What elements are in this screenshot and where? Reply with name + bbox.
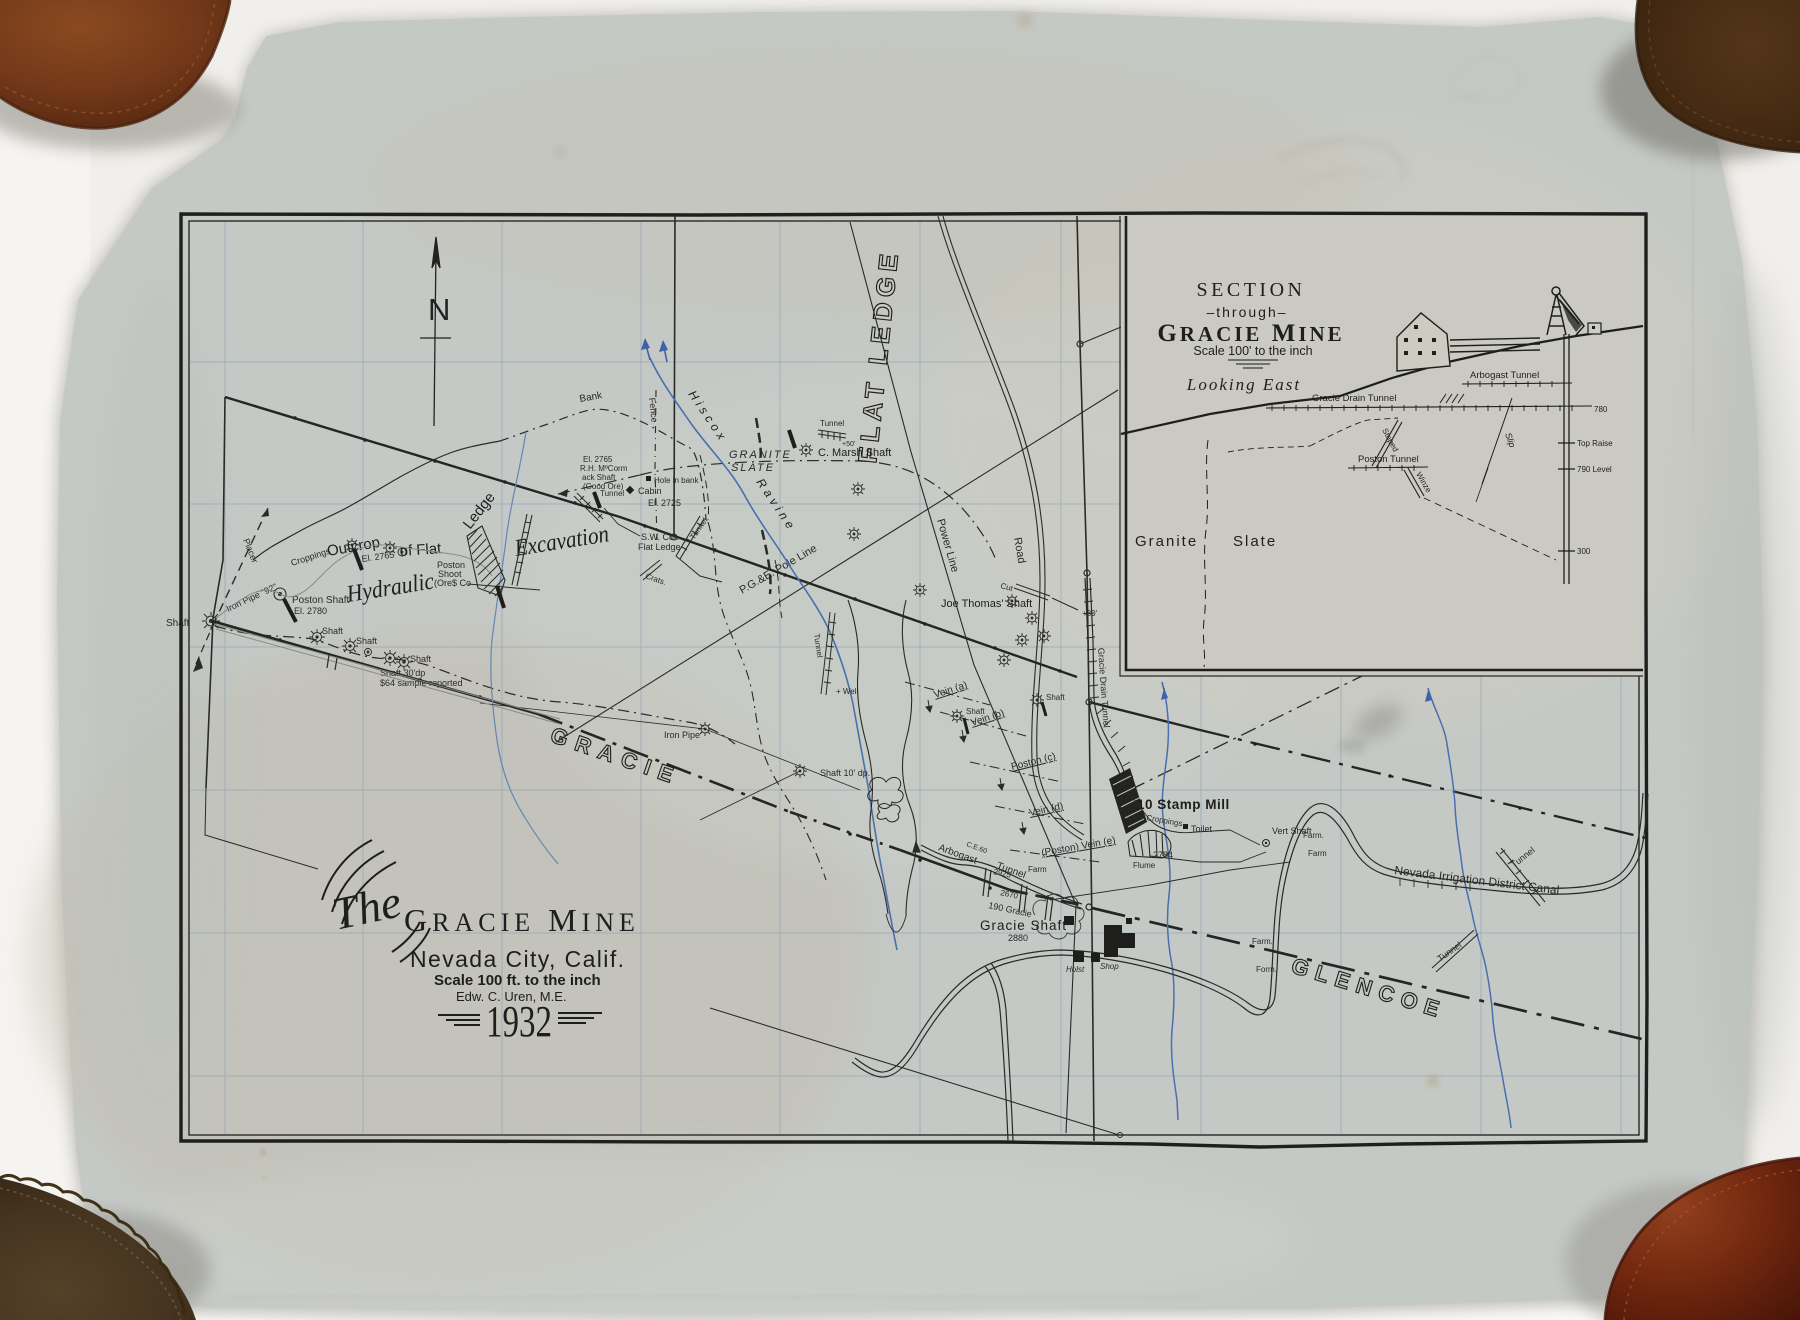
svg-text:790 Level: 790 Level <box>1577 465 1612 474</box>
svg-text:SLATE: SLATE <box>731 462 775 474</box>
svg-text:10 Stamp Mill: 10 Stamp Mill <box>1137 797 1230 812</box>
svg-text:Scale 100 ft. to the inch: Scale 100 ft. to the inch <box>434 972 601 989</box>
svg-text:Gracie Shaft: Gracie Shaft <box>980 918 1067 933</box>
svg-text:Flume: Flume <box>1133 861 1156 870</box>
svg-text:Nevada City, Calif.: Nevada City, Calif. <box>410 946 624 972</box>
svg-text:Gracie Drain Tunnel: Gracie Drain Tunnel <box>1312 393 1396 404</box>
svg-text:(Ore$ Co: (Ore$ Co <box>434 578 471 588</box>
svg-text:El. 2780: El. 2780 <box>294 606 327 616</box>
svg-text:S.W. Cor.: S.W. Cor. <box>641 532 679 542</box>
svg-text:GRACIE MINE: GRACIE MINE <box>1157 320 1344 347</box>
svg-text:Iron Pipe: Iron Pipe <box>664 730 700 740</box>
svg-text:Hole in bank: Hole in bank <box>654 476 699 485</box>
svg-text:Looking East: Looking East <box>1186 375 1301 394</box>
svg-text:300: 300 <box>1577 547 1591 556</box>
svg-text:Shaft: Shaft <box>410 654 432 664</box>
svg-text:Form.: Form. <box>1256 965 1277 974</box>
svg-text:Granite: Granite <box>1135 533 1198 550</box>
svg-text:Shaft: Shaft <box>166 618 190 629</box>
svg-text:Shaft 10' dp.: Shaft 10' dp. <box>820 768 870 778</box>
svg-text:+30': +30' <box>1082 609 1098 618</box>
svg-text:Cabin: Cabin <box>638 486 662 496</box>
svg-text:El. 2725: El. 2725 <box>648 498 681 508</box>
svg-text:Farm.: Farm. <box>1252 937 1273 946</box>
svg-text:–through–: –through– <box>1206 304 1287 320</box>
svg-text:Shaft: Shaft <box>1046 693 1065 702</box>
svg-text:El. 2765: El. 2765 <box>583 455 613 464</box>
svg-text:Farm: Farm <box>1308 849 1327 858</box>
svg-text:Poston Tunnel: Poston Tunnel <box>1358 454 1419 465</box>
svg-text:Poston Shaft: Poston Shaft <box>292 595 349 606</box>
svg-text:Farm.: Farm. <box>1303 831 1324 840</box>
svg-text:+50': +50' <box>842 441 855 448</box>
svg-text:ack Shaft: ack Shaft <box>582 473 616 482</box>
svg-text:R.H. MºCorm: R.H. MºCorm <box>580 464 628 473</box>
svg-text:Shop: Shop <box>1100 962 1119 971</box>
svg-text:+ Well: + Well <box>836 687 859 696</box>
svg-text:Shaft: Shaft <box>322 626 344 636</box>
svg-text:Farm: Farm <box>1028 865 1047 874</box>
svg-text:Tunnel: Tunnel <box>600 489 624 498</box>
svg-text:1932: 1932 <box>486 997 552 1046</box>
svg-text:Shaft: Shaft <box>356 636 378 646</box>
svg-text:Slate: Slate <box>1233 533 1277 550</box>
svg-text:Joe Thomas' Shaft: Joe Thomas' Shaft <box>941 598 1032 610</box>
svg-text:N: N <box>428 292 450 327</box>
svg-text:SECTION: SECTION <box>1197 279 1306 301</box>
svg-text:Scale 100' to the inch: Scale 100' to the inch <box>1193 344 1312 358</box>
svg-text:2880: 2880 <box>1008 933 1028 943</box>
svg-text:Tunnel: Tunnel <box>820 419 844 428</box>
svg-text:780: 780 <box>1594 405 1608 414</box>
svg-text:Flat Ledge: Flat Ledge <box>638 542 681 552</box>
svg-text:Shaft: Shaft <box>966 707 985 716</box>
svg-text:Top Raise: Top Raise <box>1577 439 1613 448</box>
svg-text:GRACIE MINE: GRACIE MINE <box>404 902 640 938</box>
svg-text:Holst: Holst <box>1066 965 1085 974</box>
svg-text:Arbogast Tunnel: Arbogast Tunnel <box>1470 370 1539 381</box>
svg-text:C. Marsh Shaft: C. Marsh Shaft <box>818 447 891 459</box>
svg-text:$64 sample reported: $64 sample reported <box>380 678 463 688</box>
